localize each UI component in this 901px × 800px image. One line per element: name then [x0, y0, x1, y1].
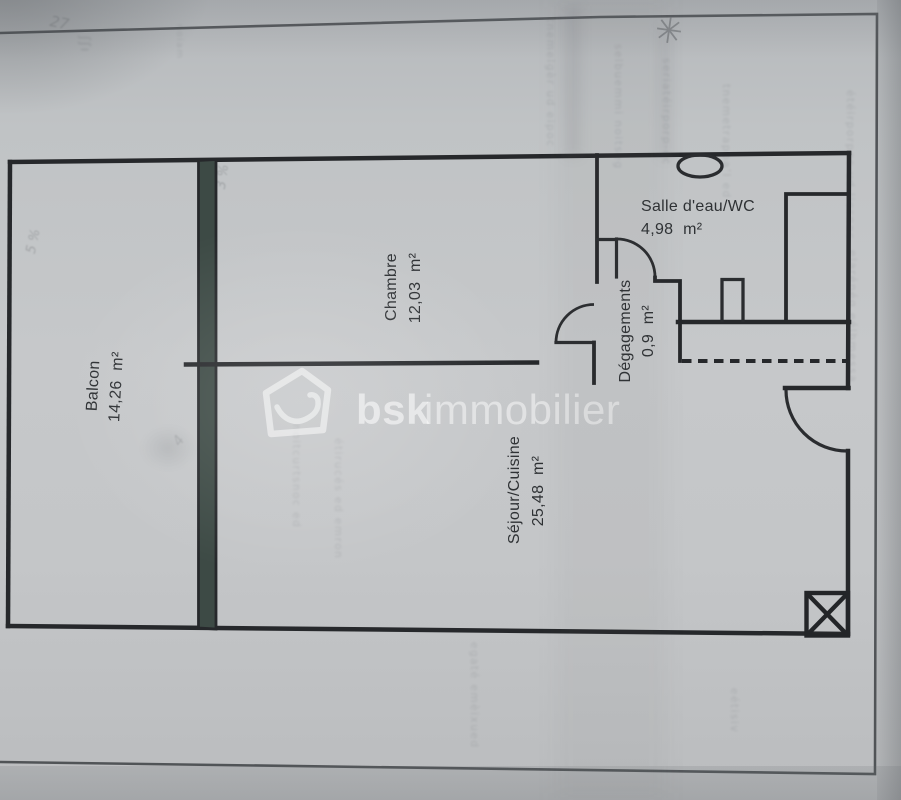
- fixtures: [678, 155, 849, 322]
- washbasin-icon: [678, 155, 722, 177]
- shower-enclosure: [786, 194, 849, 322]
- room-area-degagements: 0,9 m²: [640, 305, 657, 358]
- room-area-chambre: 12,03 m²: [407, 252, 424, 323]
- watermark-brand-bold: bsk: [356, 386, 430, 433]
- wall-degagements-notch: [655, 278, 680, 323]
- wall-right-upper: [848, 153, 849, 388]
- door-arc-entrance: [786, 390, 848, 451]
- room-label-sejour: Séjour/Cuisine: [506, 436, 523, 544]
- wc-fixture: [722, 280, 743, 323]
- wall-top: [10, 153, 849, 162]
- floor-plan-drawing: bsk immobilier: [0, 0, 901, 800]
- asterisk-mark: [655, 15, 682, 44]
- door-arc-chambre: [556, 305, 594, 343]
- wall-bottom: [8, 626, 848, 634]
- room-area-sejour: 25,48 m²: [530, 455, 547, 526]
- window-wall-balcony: [199, 160, 217, 630]
- room-area-salle-eau: 4,98 m²: [641, 221, 703, 238]
- door-arc-salle-eau: [617, 239, 656, 278]
- watermark-brand-light: immobilier: [424, 386, 620, 433]
- watermark: bsk immobilier: [266, 371, 620, 434]
- room-label-chambre: Chambre: [383, 253, 400, 321]
- watermark-logo-swoosh: [277, 395, 318, 422]
- wall-chambre-sejour: [186, 363, 537, 365]
- room-label-degagements: Dégagements: [617, 280, 634, 383]
- room-labels: Balcon 14,26 m² Chambre 12,03 m² Séjour/…: [84, 198, 755, 544]
- wall-left: [8, 162, 10, 626]
- scanned-floor-plan-photo: tnemelgèr ud eipoc selbuemmi noitseg ser…: [0, 0, 901, 800]
- room-label-balcon: Balcon: [84, 360, 104, 412]
- room-area-balcon: 14,26 m²: [106, 351, 127, 423]
- shaft-symbol: [807, 593, 849, 636]
- room-label-salle-eau: Salle d'eau/WC: [641, 198, 755, 215]
